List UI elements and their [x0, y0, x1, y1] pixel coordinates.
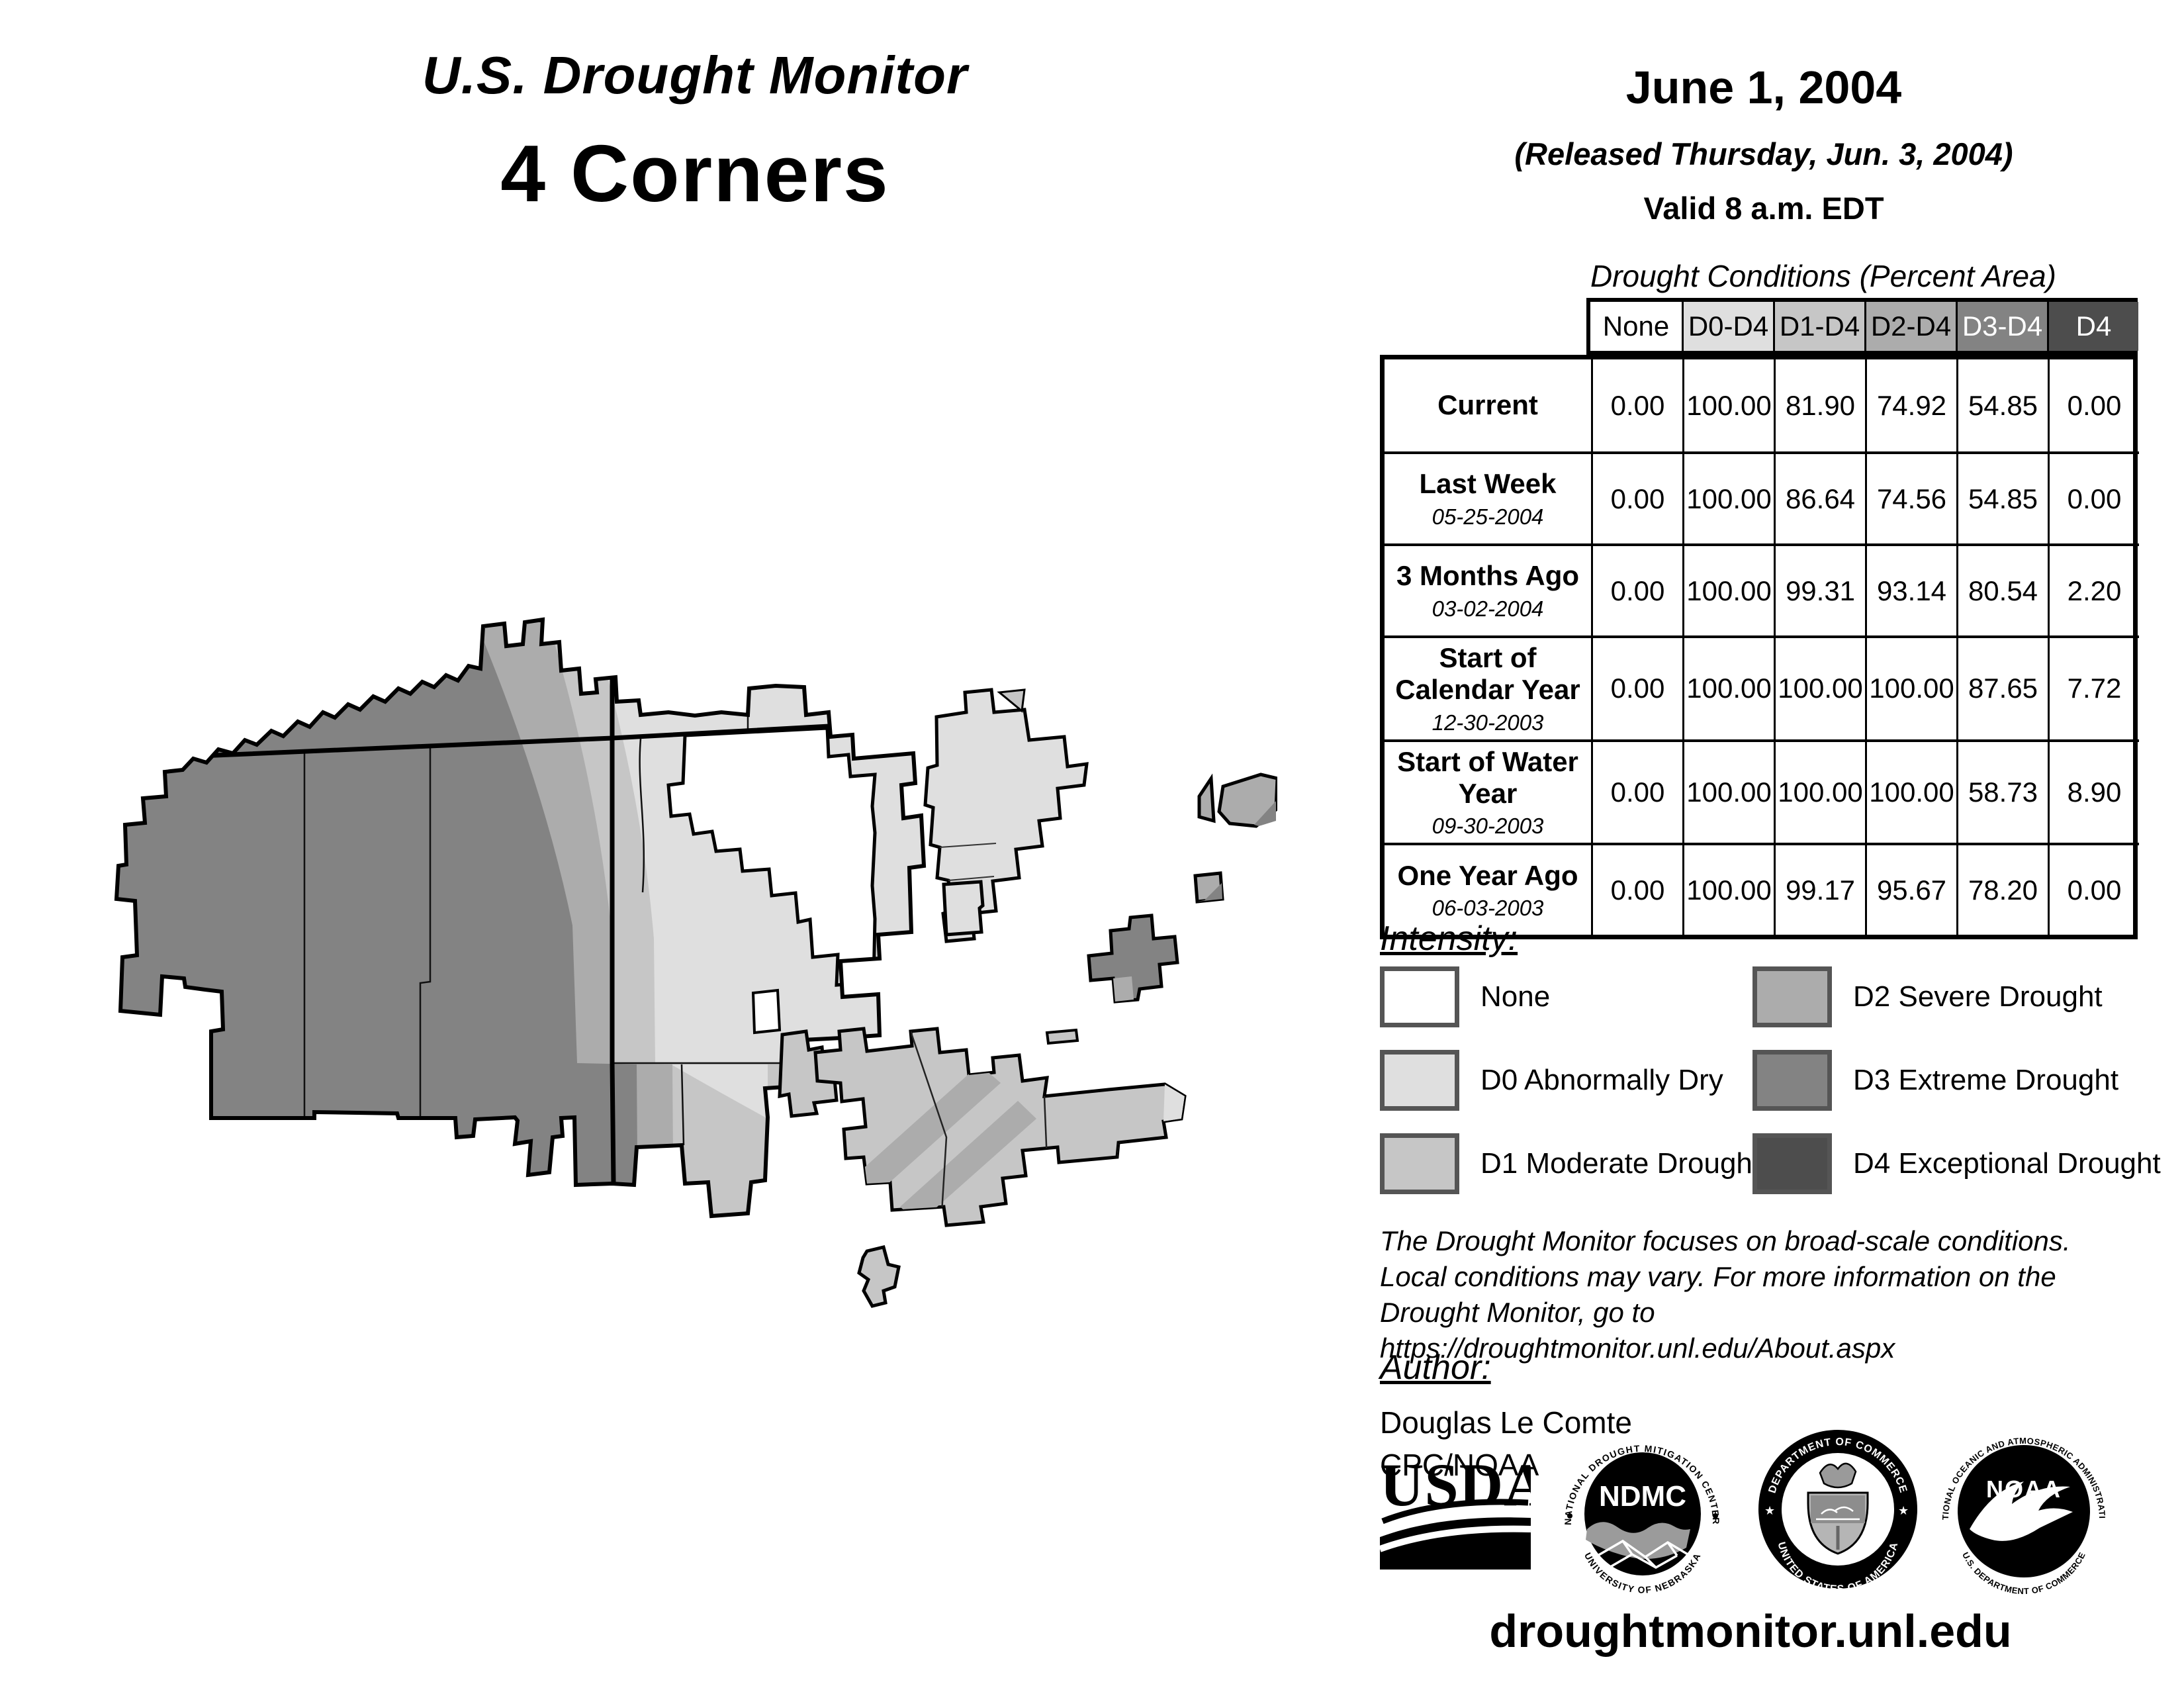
- col-header-d2d4: D2-D4: [1864, 302, 1956, 351]
- col-header-d4: D4: [2047, 302, 2138, 351]
- table-cell: 2.20: [2048, 543, 2139, 635]
- region-title: 4 Corners: [86, 127, 1304, 220]
- drought-map: [86, 608, 1277, 1342]
- legend-item-d2: D2 Severe Drought: [1752, 966, 2103, 1027]
- ndmc-abbr: NDMC: [1599, 1480, 1686, 1513]
- legend-swatch-d3: [1752, 1050, 1832, 1111]
- table-cell: 86.64: [1774, 451, 1865, 543]
- table-cell: 80.54: [1956, 543, 2048, 635]
- author-heading: Author:: [1380, 1348, 1491, 1387]
- drought-conditions-table: None D0-D4 D1-D4 D2-D4 D3-D4 D4 Current …: [1380, 298, 2138, 939]
- table-cell: 0.00: [1591, 451, 1682, 543]
- table-body: Current 0.00 100.00 81.90 74.92 54.85 0.…: [1380, 355, 2138, 939]
- map-island-small-d0: [944, 882, 983, 935]
- table-cell: 100.00: [1682, 739, 1774, 843]
- legend-item-d4: D4 Exceptional Drought: [1752, 1133, 2161, 1194]
- row-label: Start of Water Year09-30-2003: [1385, 739, 1591, 843]
- ndmc-dot-left: [1567, 1513, 1572, 1519]
- legend-item-none: None: [1380, 966, 1550, 1027]
- legend-swatch-d4: [1752, 1133, 1832, 1194]
- noaa-logo: NATIONAL OCEANIC AND ATMOSPHERIC ADMINIS…: [1939, 1423, 2111, 1597]
- table-cell: 0.00: [2048, 451, 2139, 543]
- commerce-logo: DEPARTMENT OF COMMERCE UNITED STATES OF …: [1755, 1427, 1921, 1592]
- legend-swatch-d0: [1380, 1050, 1459, 1111]
- table-cell: 99.17: [1774, 843, 1865, 935]
- map-none-pocket: [753, 990, 780, 1033]
- table-cell: 54.85: [1956, 451, 2048, 543]
- table-cell: 0.00: [1591, 359, 1682, 451]
- footer-url: droughtmonitor.unl.edu: [1396, 1605, 2105, 1658]
- commerce-star-left: ★: [1764, 1504, 1775, 1517]
- legend-swatch-none: [1380, 966, 1459, 1027]
- table-cell: 87.65: [1956, 635, 2048, 739]
- table-cell: 100.00: [1865, 739, 1956, 843]
- noaa-abbr: NOAA: [1986, 1476, 2062, 1503]
- table-cell: 78.20: [1956, 843, 2048, 935]
- row-label: 3 Months Ago03-02-2004: [1385, 543, 1591, 635]
- col-header-d3d4: D3-D4: [1956, 302, 2047, 351]
- table-cell: 0.00: [1591, 543, 1682, 635]
- row-label: Start of Calendar Year12-30-2003: [1385, 635, 1591, 739]
- map-island-square: [1195, 873, 1222, 902]
- map-island-dash: [1047, 1030, 1077, 1043]
- legend-item-d0: D0 Abnormally Dry: [1380, 1050, 1723, 1111]
- table-cell: 99.31: [1774, 543, 1865, 635]
- table-cell: 100.00: [1682, 635, 1774, 739]
- table-cell: 100.00: [1682, 359, 1774, 451]
- table-cell: 0.00: [2048, 359, 2139, 451]
- legend-swatch-d2: [1752, 966, 1832, 1027]
- table-cell: 93.14: [1865, 543, 1956, 635]
- monitor-title: U.S. Drought Monitor: [86, 45, 1304, 106]
- table-cell: 7.72: [2048, 635, 2139, 739]
- table-cell: 100.00: [1682, 451, 1774, 543]
- usda-wordmark: USDA: [1380, 1455, 1531, 1519]
- table-cell: 58.73: [1956, 739, 2048, 843]
- col-header-d1d4: D1-D4: [1773, 302, 1864, 351]
- legend-swatch-d1: [1380, 1133, 1459, 1194]
- table-cell: 95.67: [1865, 843, 1956, 935]
- map-date: June 1, 2004: [1377, 61, 2151, 114]
- legend-item-d1: D1 Moderate Drought: [1380, 1133, 1760, 1194]
- table-cell: 74.56: [1865, 451, 1956, 543]
- intensity-heading: Intensity:: [1380, 919, 1518, 959]
- ndmc-logo: NATIONAL DROUGHT MITIGATION CENTER UNIVE…: [1563, 1423, 1722, 1602]
- table-cell: 8.90: [2048, 739, 2139, 843]
- table-cell: 100.00: [1774, 635, 1865, 739]
- table-cell: 100.00: [1865, 635, 1956, 739]
- col-header-d0d4: D0-D4: [1682, 302, 1773, 351]
- map-island-south-cluster: [815, 1029, 1185, 1225]
- map-island-blob: [859, 1247, 899, 1306]
- ndmc-dot-right: [1713, 1513, 1718, 1519]
- released-date: (Released Thursday, Jun. 3, 2004): [1377, 136, 2151, 172]
- map-island-dark-cluster: [1089, 915, 1177, 1002]
- row-label: Last Week05-25-2004: [1385, 451, 1591, 543]
- table-cell: 100.00: [1774, 739, 1865, 843]
- table-header-row: None D0-D4 D1-D4 D2-D4 D3-D4 D4: [1586, 298, 2138, 355]
- usda-logo: USDA: [1380, 1455, 1531, 1571]
- table-cell: 100.00: [1682, 843, 1774, 935]
- table-cell: 74.92: [1865, 359, 1956, 451]
- map-island-pair: [1199, 774, 1277, 826]
- table-cell: 81.90: [1774, 359, 1865, 451]
- table-cell: 54.85: [1956, 359, 2048, 451]
- table-cell: 0.00: [1591, 635, 1682, 739]
- table-cell: 0.00: [1591, 739, 1682, 843]
- table-cell: 0.00: [1591, 843, 1682, 935]
- legend-item-d3: D3 Extreme Drought: [1752, 1050, 2118, 1111]
- table-cell: 100.00: [1682, 543, 1774, 635]
- valid-time: Valid 8 a.m. EDT: [1377, 190, 2151, 226]
- table-cell: 0.00: [2048, 843, 2139, 935]
- commerce-star-right: ★: [1898, 1504, 1909, 1517]
- row-label: Current: [1385, 359, 1591, 451]
- disclaimer-text: The Drought Monitor focuses on broad-sca…: [1380, 1223, 2174, 1366]
- col-header-none: None: [1590, 302, 1682, 351]
- table-title: Drought Conditions (Percent Area): [1496, 258, 2151, 294]
